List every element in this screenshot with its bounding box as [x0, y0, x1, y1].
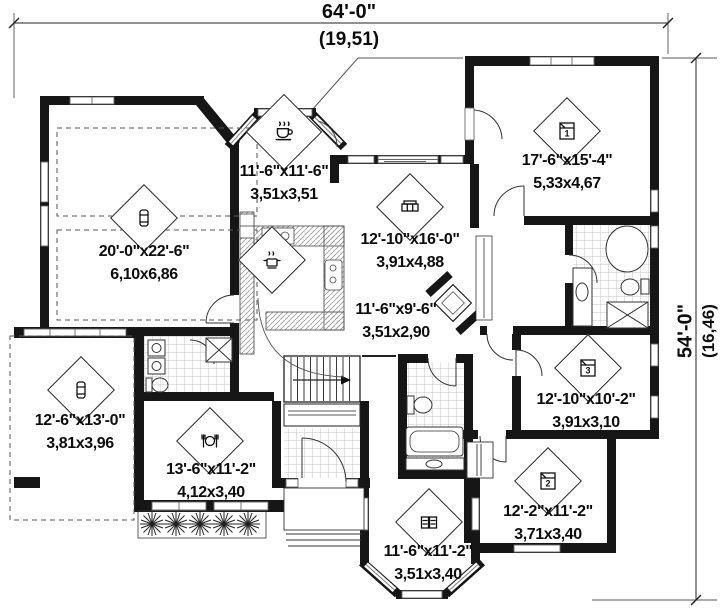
room-dim-metric: 3,51x3,40 [384, 563, 473, 586]
svg-text:3: 3 [585, 366, 590, 376]
room-dim-metric: 4,12x3,40 [166, 481, 256, 504]
room-label-dining: 13'-6"x11'-2" 4,12x3,40 [166, 458, 256, 504]
overall-width-metric: (19,51) [319, 29, 379, 51]
bed-icon: 3 [577, 357, 599, 379]
room-dim-metric: 3,51x3,51 [240, 183, 329, 206]
room-dim-imperial: 20'-0"x22'-6" [99, 240, 190, 263]
sofa-icon [399, 196, 421, 218]
front-porch [284, 488, 364, 546]
car-icon [70, 379, 92, 401]
car-icon [133, 207, 155, 229]
room-dim-imperial: 13'-6"x11'-2" [166, 458, 256, 481]
room-label-office: 11'-6"x11'-2" 3,51x3,40 [384, 540, 473, 586]
room-label-parking: 12'-6"x13'-0" 3,81x3,96 [35, 409, 126, 455]
kitchen-counters [240, 212, 344, 354]
room-dim-metric: 6,10x6,86 [99, 263, 190, 286]
svg-text:1: 1 [564, 129, 569, 139]
room-dim-metric: 3,51x2,90 [355, 321, 436, 344]
room-label-bedroom-3: 12'-10"x10'-2" 3,91x3,10 [536, 388, 635, 434]
shrub-planter [138, 511, 266, 538]
room-dim-imperial: 12'-2"x11'-2" [503, 500, 593, 523]
room-dim-metric: 3,91x4,88 [360, 251, 459, 274]
room-dim-metric: 5,33x4,67 [522, 172, 613, 195]
overall-depth-imperial: 54'-0" [675, 304, 698, 358]
room-label-dinette: 11'-6"x9'-6" 3,51x2,90 [355, 298, 436, 344]
overall-width-imperial: 64'-0" [322, 1, 376, 24]
room-label-master-bedroom: 17'-6"x15'-4" 5,33x4,67 [522, 149, 613, 195]
books-icon [418, 511, 440, 533]
svg-text:2: 2 [545, 479, 550, 489]
bedroom2-closet [467, 442, 493, 478]
room-dim-imperial: 17'-6"x15'-4" [522, 149, 613, 172]
room-label-breakfast: 11'-6"x11'-6" 3,51x3,51 [240, 160, 329, 206]
room-dim-imperial: 12'-10"x16'-0" [360, 228, 459, 251]
overall-depth-metric: (16,46) [699, 304, 719, 358]
room-dim-metric: 3,91x3,10 [536, 411, 635, 434]
room-label-bedroom-2: 12'-2"x11'-2" 3,71x3,40 [503, 500, 593, 546]
bed-icon: 1 [556, 120, 578, 142]
room-label-garage: 20'-0"x22'-6" 6,10x6,86 [99, 240, 190, 286]
room-dim-imperial: 11'-6"x11'-6" [240, 160, 329, 183]
cooking-pot-icon [261, 249, 283, 271]
room-dim-imperial: 12'-6"x13'-0" [35, 409, 126, 432]
plate-cutlery-icon [199, 430, 221, 452]
room-dim-imperial: 11'-6"x9'-6" [355, 298, 436, 321]
room-dim-metric: 3,81x3,96 [35, 432, 126, 455]
floor-plan-sheet: 64'-0" (19,51) 54'-0" (16,46) 11'-6"x11'… [0, 0, 720, 611]
coffee-cup-icon [272, 120, 296, 144]
deck-outline [312, 58, 463, 110]
room-dim-metric: 3,71x3,40 [503, 523, 593, 546]
room-dim-imperial: 11'-6"x11'-2" [384, 540, 473, 563]
room-dim-imperial: 12'-10"x10'-2" [536, 388, 635, 411]
room-label-living: 12'-10"x16'-0" 3,91x4,88 [360, 228, 459, 274]
bed-icon: 2 [537, 470, 559, 492]
